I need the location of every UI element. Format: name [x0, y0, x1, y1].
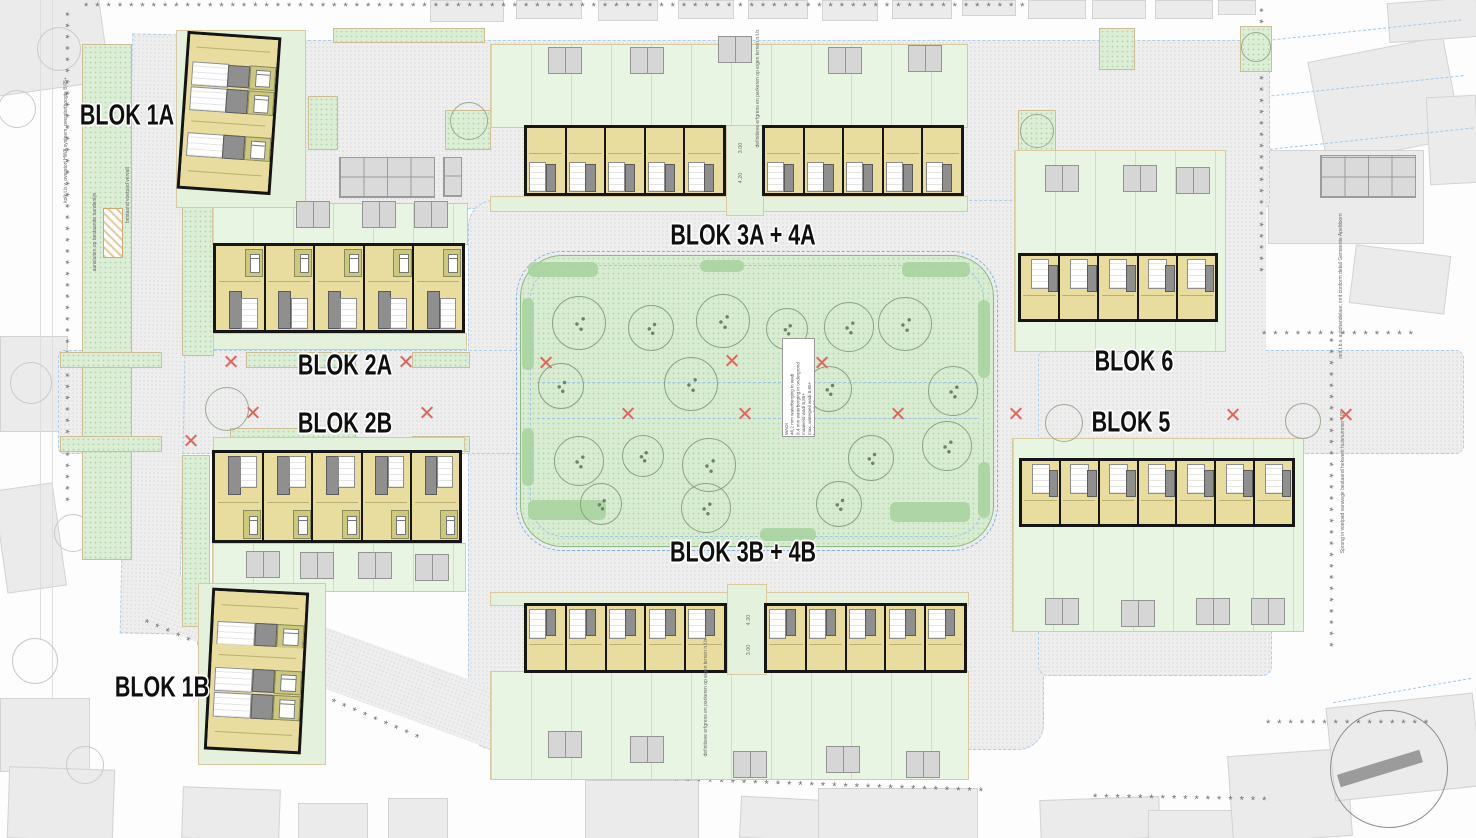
parking-pair-icon [300, 552, 334, 579]
stair-core [1205, 265, 1215, 292]
bed-icon [298, 516, 308, 535]
parking-pair-icon [414, 201, 448, 228]
existing-tree-icon [0, 90, 36, 128]
bedroom [276, 624, 305, 649]
existing-tree-icon [10, 362, 52, 404]
housing-unit [765, 128, 805, 193]
room-divider-line [809, 644, 842, 645]
tree-icon [928, 366, 978, 416]
stair-core [625, 164, 635, 192]
stair-core [1049, 470, 1059, 497]
housing-unit [1178, 256, 1215, 319]
housing-block-row [212, 450, 462, 543]
existing-building [181, 786, 281, 838]
bed-icon [249, 516, 259, 535]
housing-unit [315, 246, 365, 330]
existing-tree-icon [12, 638, 58, 684]
bedroom [248, 66, 276, 91]
parking-pair-icon [630, 736, 664, 763]
parking-pair-icon [630, 47, 664, 74]
utility-room [889, 609, 906, 639]
stair-core [1165, 265, 1175, 292]
housing-unit [215, 453, 264, 540]
utility-room [1109, 259, 1127, 290]
tree-icon [848, 435, 894, 481]
parking-pair-icon [1176, 167, 1210, 194]
utility-room [1187, 464, 1205, 495]
stair-core [278, 291, 291, 328]
housing-unit [1139, 256, 1178, 319]
park-planting-patch [890, 502, 970, 522]
utility-room [1032, 464, 1050, 495]
utility-room [846, 162, 863, 193]
stair-core [326, 456, 339, 495]
housing-unit [1061, 461, 1100, 524]
red-cross-marker [538, 355, 553, 370]
room-divider-line [767, 153, 800, 154]
bed-icon [250, 254, 260, 273]
room-divider-line [215, 731, 291, 736]
stair-core [784, 164, 794, 192]
housing-block-row [524, 125, 726, 196]
existing-building [1387, 0, 1476, 43]
utility-room [807, 162, 824, 193]
dimension-text: 3.00 [738, 143, 744, 154]
annotation-note: aansluiten op bestaande bandenlijn [92, 193, 98, 272]
green-verge [333, 28, 485, 43]
existing-building [1218, 0, 1256, 15]
room-divider-line [1023, 295, 1056, 296]
room-divider-line [1062, 295, 1095, 296]
housing-block-row [524, 603, 727, 673]
tree-icon [878, 297, 932, 351]
parking-grid [339, 157, 435, 198]
green-verge [60, 436, 162, 452]
housing-unit [363, 453, 412, 540]
bed-icon [280, 674, 296, 692]
bedroom [247, 90, 275, 117]
green-front-strip [727, 584, 767, 675]
housing-unit [1100, 461, 1139, 524]
housing-unit [1099, 256, 1138, 319]
utility-room [648, 162, 665, 193]
existing-building [1426, 95, 1476, 185]
red-cross-marker [890, 406, 905, 421]
stair-core [903, 164, 913, 192]
bathroom [340, 298, 357, 329]
stair-core [1165, 470, 1175, 497]
room-divider-line [368, 281, 410, 282]
stair-core [586, 609, 596, 637]
existing-street-line [52, 0, 53, 700]
existing-building [1155, 0, 1213, 19]
apartment-core-rooms [212, 691, 252, 719]
green-verge [308, 96, 338, 150]
apartment-block [177, 31, 282, 195]
red-cross-marker [183, 433, 198, 448]
apartment-core-rooms [190, 62, 229, 88]
parking-pair-icon [548, 47, 582, 74]
stair-core [1048, 265, 1058, 292]
street-tree-icon [1285, 403, 1321, 439]
bed-icon [349, 254, 359, 273]
tree-icon [554, 436, 604, 486]
apartment-core-rooms [189, 86, 228, 113]
housing-unit [607, 606, 647, 670]
room-divider-line [769, 644, 802, 645]
bed-icon [283, 628, 299, 646]
parking-pair-icon [828, 47, 862, 74]
boundary-marker-line: ****************************************… [84, 2, 1032, 12]
stair-core [1243, 470, 1253, 497]
blok-label: BLOK 6 [1095, 346, 1174, 379]
room-divider-line [1141, 295, 1174, 296]
room-divider-line [608, 153, 641, 154]
room-divider-line [846, 153, 879, 154]
bedroom [272, 695, 301, 722]
utility-room [769, 609, 786, 639]
utility-room [569, 162, 586, 193]
bathroom [241, 298, 258, 329]
bathroom [390, 298, 407, 329]
housing-unit [567, 606, 607, 670]
utility-room [688, 609, 705, 639]
existing-building [1092, 0, 1146, 19]
stair-core [250, 694, 273, 720]
park-planting-patch [700, 260, 744, 272]
red-cross-marker [398, 354, 413, 369]
stair-core [625, 609, 635, 637]
room-divider-line [648, 153, 681, 154]
bathroom [338, 456, 355, 488]
housing-unit [805, 128, 845, 193]
stair-core [1126, 470, 1136, 497]
room-divider-line [1102, 500, 1134, 501]
room-divider-line [688, 153, 721, 154]
room-divider-line [219, 281, 261, 282]
green-verge [1099, 28, 1135, 70]
annotation-note: bestaand voetpad vervalt [125, 167, 131, 223]
annotation-note: inrit t.b.v. autohandelaar, inrit confor… [1338, 213, 1344, 358]
bathroom [291, 298, 308, 329]
existing-building [1349, 244, 1451, 314]
room-divider-line [886, 153, 919, 154]
utility-room [569, 609, 586, 639]
housing-unit [313, 453, 362, 540]
housing-unit [926, 606, 964, 670]
stair-core [227, 65, 250, 89]
bathroom [440, 298, 457, 329]
housing-unit [1022, 461, 1061, 524]
stair-core [865, 609, 875, 637]
stair-core [229, 291, 242, 328]
street-tree-icon [450, 102, 488, 140]
dimension-text: 4.20 [746, 615, 752, 626]
room-divider-line [609, 644, 642, 645]
bed-icon [448, 254, 458, 273]
stair-core [277, 456, 290, 495]
existing-building [1028, 0, 1086, 19]
room-divider-line [807, 153, 840, 154]
bathroom [437, 456, 454, 488]
existing-building [298, 803, 368, 838]
stair-core [942, 164, 952, 192]
bathroom [388, 456, 405, 488]
stair-core [665, 164, 675, 192]
blok-label: BLOK 2A [298, 350, 392, 383]
room-divider-line [415, 502, 457, 503]
housing-unit [365, 246, 415, 330]
housing-unit [646, 128, 686, 193]
red-cross-marker [814, 355, 829, 370]
room-divider-line [1257, 500, 1289, 501]
parking-pair-icon [1123, 165, 1157, 192]
bedroom [293, 510, 311, 538]
room-divider-line [318, 281, 360, 282]
stair-core [222, 135, 245, 160]
housing-unit [886, 606, 926, 670]
room-divider-line [268, 281, 310, 282]
room-divider-line [196, 47, 270, 53]
green-verge [412, 352, 470, 368]
parking-pair-icon [1196, 598, 1230, 625]
apartment-block [204, 588, 309, 755]
bedroom [243, 136, 271, 163]
bedroom [342, 510, 360, 538]
utility-room [608, 162, 625, 193]
apartment-core-rooms [214, 666, 254, 692]
blok-label: BLOK 1A [80, 100, 174, 133]
utility-room [809, 609, 826, 639]
wadi-annotation-box: WADI 46,2 mm waterberging in wadi 9,4 mm… [782, 338, 815, 437]
stair-core [1126, 265, 1136, 292]
utility-room [1148, 259, 1166, 290]
stair-core [378, 291, 391, 328]
utility-room [529, 162, 546, 193]
parking-pair-icon [548, 731, 582, 758]
blok-label: BLOK 1B [115, 672, 209, 705]
bedroom [440, 510, 458, 538]
stair-core [863, 164, 873, 192]
green-verge [60, 352, 162, 368]
room-divider-line [365, 502, 407, 503]
room-divider-line [316, 502, 358, 503]
overflow-hatch-box [103, 208, 123, 258]
tree-icon [681, 483, 731, 533]
bed-icon [300, 254, 310, 273]
blok-label: BLOK 3B + 4B [670, 537, 816, 570]
tree-icon [622, 435, 664, 477]
stair-core [786, 609, 796, 637]
red-cross-marker [1008, 406, 1023, 421]
utility-room [849, 609, 866, 639]
bed-icon [399, 254, 409, 273]
bedroom [245, 249, 263, 276]
park-planting-patch [978, 300, 990, 378]
housing-unit [1177, 461, 1216, 524]
parking-pair-icon [1121, 600, 1155, 627]
housing-unit [567, 128, 607, 193]
housing-unit [767, 606, 807, 670]
park-planting-patch [528, 262, 598, 277]
housing-unit [884, 128, 924, 193]
tree-icon [696, 294, 750, 348]
blok-label: BLOK 2B [298, 408, 392, 441]
room-divider-line [926, 153, 959, 154]
housing-unit [807, 606, 847, 670]
existing-building [388, 798, 448, 838]
stair-core [665, 609, 675, 637]
stair-core [254, 623, 277, 647]
bed-icon [255, 70, 271, 88]
housing-block-row [1018, 253, 1218, 322]
room-divider-line [529, 153, 562, 154]
room-divider-line [218, 502, 260, 503]
red-cross-marker [724, 353, 739, 368]
utility-room [529, 609, 546, 639]
red-cross-marker [620, 406, 635, 421]
boundary-marker-line: **************************** [1324, 338, 1334, 654]
room-divider-line [1102, 295, 1135, 296]
parking-pair-icon [246, 551, 280, 578]
parking-pair-icon [1251, 598, 1285, 625]
bedroom [443, 249, 461, 276]
existing-street-line [40, 0, 41, 640]
room-divider-line [849, 644, 882, 645]
street-tree-icon [1045, 404, 1083, 442]
stair-core [704, 164, 714, 192]
housing-block-row [764, 603, 967, 673]
room-divider-line [928, 644, 961, 645]
stair-core [425, 456, 438, 495]
room-divider-line [1219, 500, 1251, 501]
parking-pair-icon [826, 746, 860, 773]
stair-core [252, 669, 275, 693]
room-divider-line [1180, 295, 1213, 296]
housing-unit [847, 606, 887, 670]
bed-icon [250, 140, 266, 159]
bed-icon [446, 516, 456, 535]
housing-unit [412, 453, 459, 540]
room-divider-line [569, 644, 602, 645]
apartment-core-rooms [216, 620, 256, 646]
room-divider-line [1024, 500, 1056, 501]
utility-room [886, 162, 903, 193]
bedroom [294, 249, 312, 276]
stair-core [228, 456, 241, 495]
utility-room [649, 609, 666, 639]
apartment-band [180, 156, 270, 191]
parking-pair-icon [908, 45, 942, 72]
blok-label: BLOK 3A + 4A [670, 220, 815, 253]
parking-pair-icon [296, 201, 330, 228]
garden-plot-strip [490, 671, 969, 780]
parking-grid [1320, 155, 1416, 198]
park-drain-line [537, 382, 977, 383]
stair-core [1087, 265, 1097, 292]
stair-core [945, 609, 955, 637]
red-cross-marker [1225, 407, 1240, 422]
tree-icon [664, 357, 718, 411]
stair-core [823, 164, 833, 192]
bedroom [344, 249, 362, 276]
housing-unit [923, 128, 961, 193]
boundary-marker-line: *************** [1266, 719, 1435, 729]
bedroom [391, 510, 409, 538]
housing-unit [1216, 461, 1255, 524]
park-planting-patch [522, 298, 534, 370]
stair-core [1204, 470, 1214, 497]
housing-unit [527, 128, 567, 193]
utility-room [1148, 464, 1166, 495]
room-divider-line [649, 644, 682, 645]
existing-building [585, 780, 699, 838]
housing-block-row [213, 243, 465, 333]
parking-pair-icon [358, 552, 392, 579]
parking-pair-icon [906, 751, 940, 778]
housing-unit [1021, 256, 1060, 319]
red-cross-marker [1338, 407, 1353, 422]
room-divider-line [1141, 500, 1173, 501]
street-tree-icon [205, 387, 249, 431]
housing-unit [266, 246, 316, 330]
stair-core [1087, 470, 1097, 497]
housing-unit [685, 128, 723, 193]
parking-grid [443, 157, 462, 197]
housing-unit [1060, 256, 1099, 319]
stair-core [585, 164, 595, 192]
stair-core [546, 609, 556, 637]
housing-unit [606, 128, 646, 193]
bathroom [240, 456, 257, 488]
housing-unit [527, 606, 567, 670]
housing-block-row [1019, 458, 1295, 527]
stair-core [225, 89, 248, 114]
utility-room [1070, 259, 1088, 290]
stair-core [905, 609, 915, 637]
tree-icon [824, 302, 874, 352]
stair-core [826, 609, 836, 637]
apartment-core-rooms [185, 132, 224, 159]
parking-pair-icon [415, 554, 449, 581]
annotation-note: Sprong in voetpad vanwege bestaand hekwe… [1340, 411, 1346, 554]
annotation-note: definitieve erfgrens en parkeren op eige… [703, 638, 709, 757]
red-cross-marker [245, 405, 260, 420]
bed-icon [396, 516, 406, 535]
stair-core [328, 291, 341, 328]
dimension-text: 4.20 [738, 173, 744, 184]
parking-pair-icon [1045, 165, 1079, 192]
housing-unit [414, 246, 462, 330]
room-divider-line [1063, 500, 1095, 501]
parking-pair-icon [1045, 598, 1079, 625]
utility-room [1070, 464, 1088, 495]
utility-room [1031, 259, 1049, 290]
bathroom [289, 456, 306, 488]
parking-pair-icon [362, 201, 396, 228]
bedroom [243, 510, 261, 538]
room-divider-line [1180, 500, 1212, 501]
street-tree-icon [1241, 32, 1271, 62]
housing-unit [1139, 461, 1178, 524]
stair-core [705, 609, 715, 637]
tree-icon [816, 481, 862, 527]
park-drain-line [537, 418, 977, 419]
tree-icon [552, 296, 606, 350]
bed-icon [279, 699, 295, 718]
green-front-strip [213, 333, 467, 350]
site-plan: WADI 46,2 mm waterberging in wadi 9,4 mm… [0, 0, 1476, 838]
